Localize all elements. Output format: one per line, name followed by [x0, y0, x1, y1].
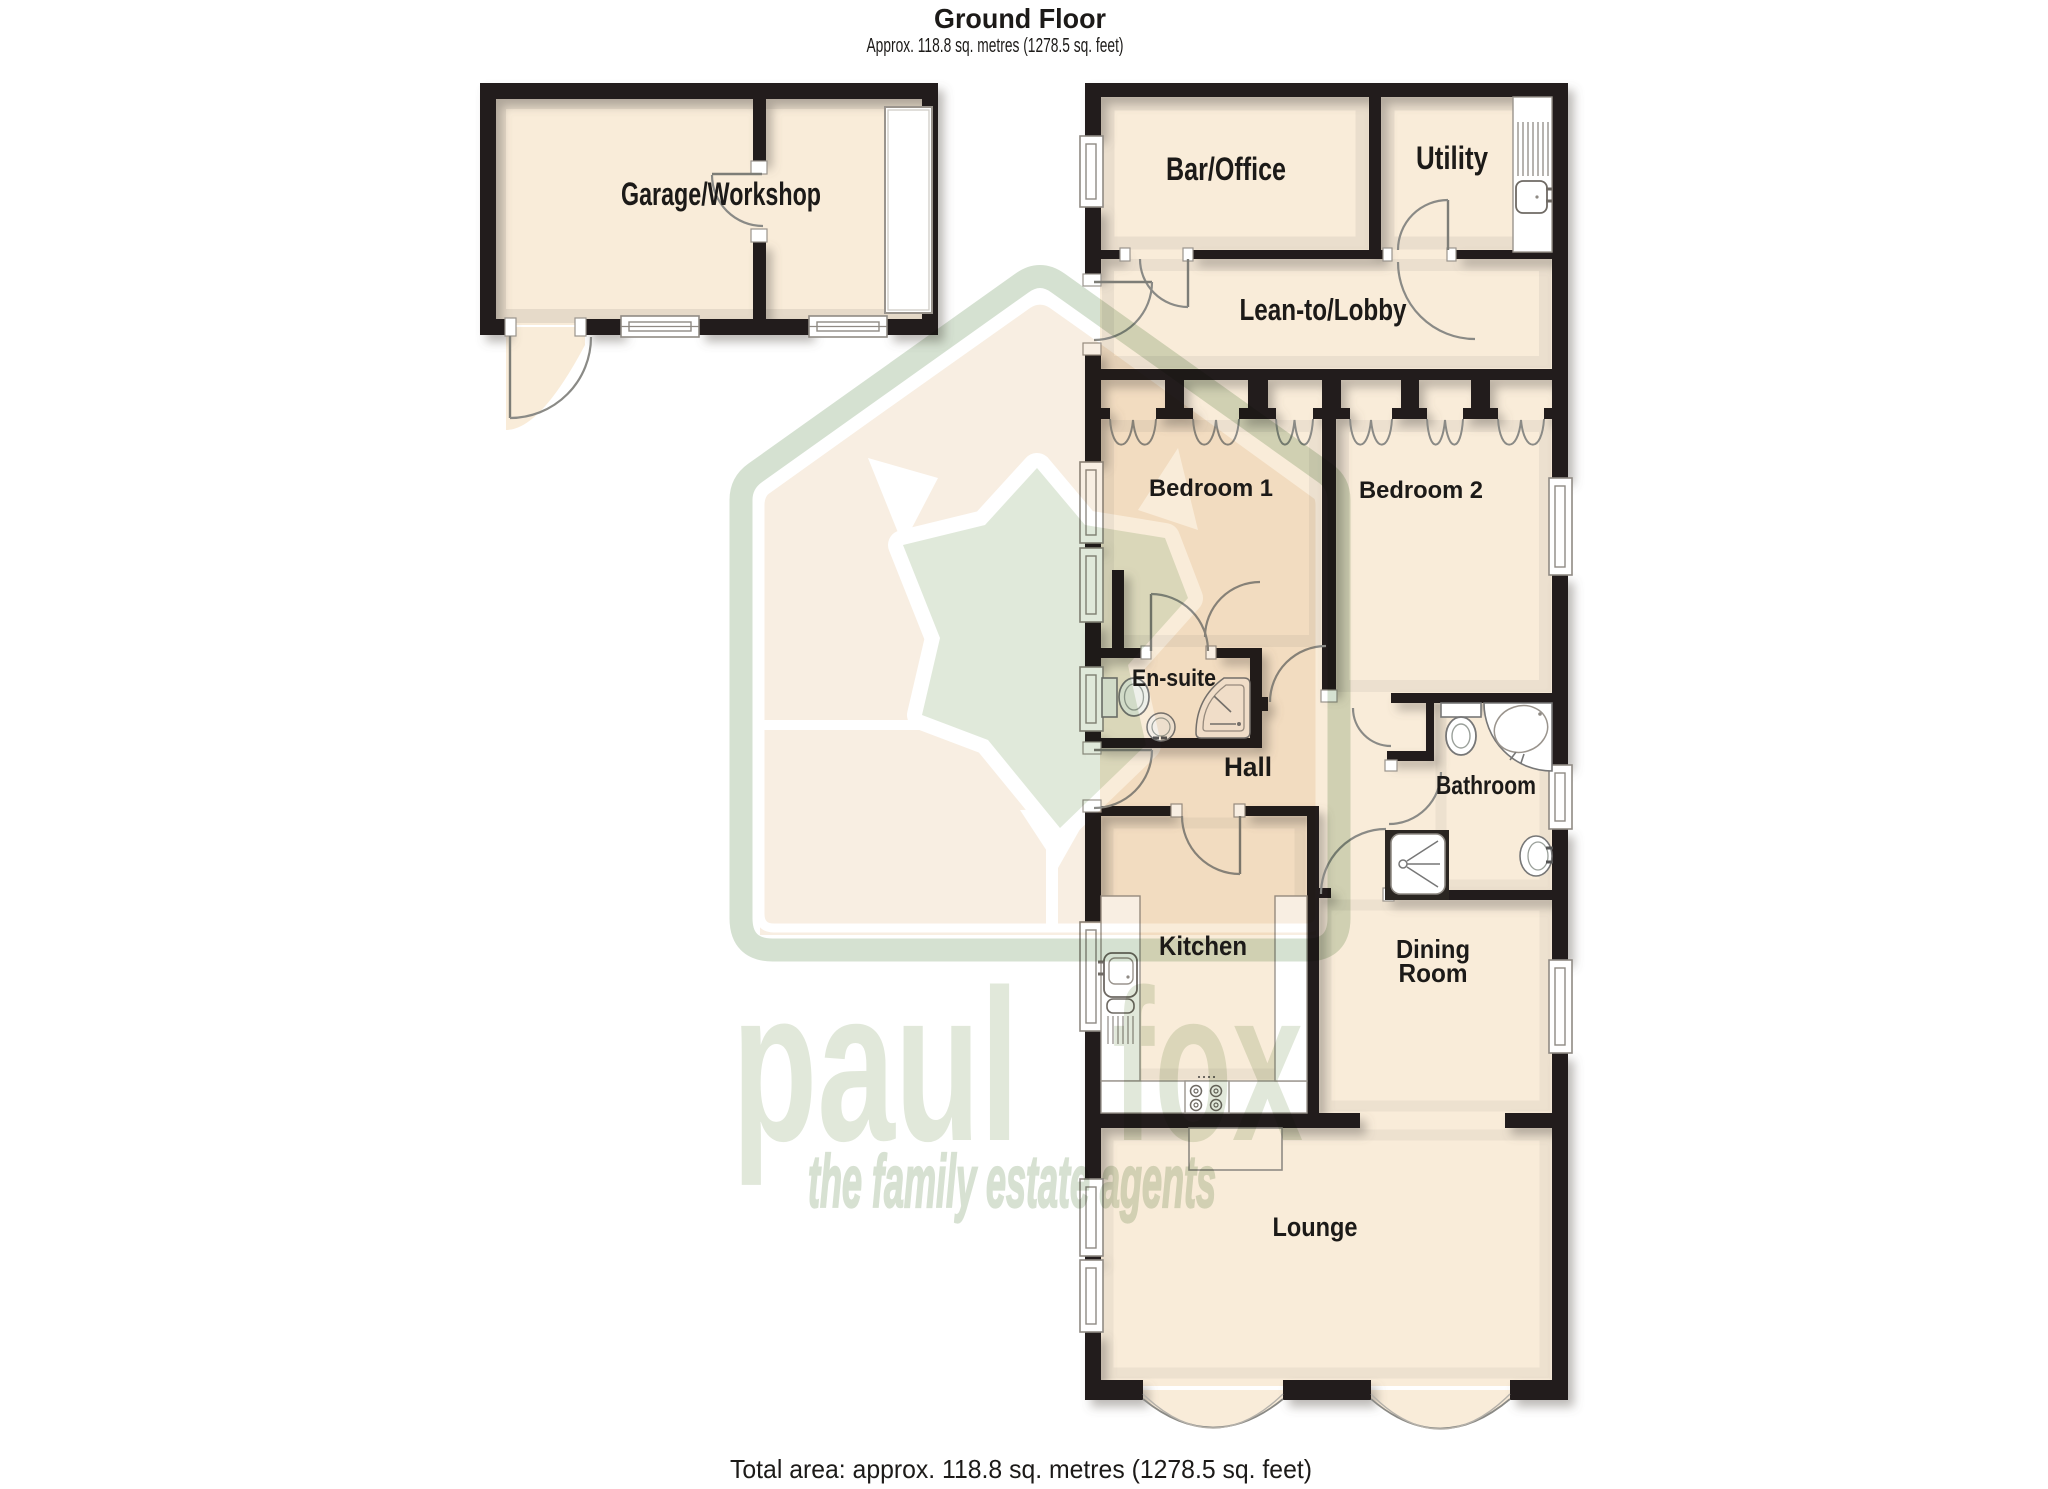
svg-text:Total area: approx. 118.8 sq.: Total area: approx. 118.8 sq. metres (12…	[730, 1454, 1312, 1484]
svg-text:Approx. 118.8 sq. metres (1278: Approx. 118.8 sq. metres (1278.5 sq. fee…	[867, 35, 1124, 57]
svg-text:Utility: Utility	[1416, 140, 1488, 176]
svg-text:Bar/Office: Bar/Office	[1166, 151, 1286, 187]
svg-text:Lounge: Lounge	[1273, 1212, 1358, 1242]
svg-text:Garage/Workshop: Garage/Workshop	[621, 176, 821, 212]
svg-text:En-suite: En-suite	[1132, 665, 1216, 692]
svg-text:Bedroom 1: Bedroom 1	[1149, 475, 1273, 502]
svg-text:the family estate agents: the family estate agents	[808, 1140, 1216, 1223]
svg-text:Bedroom 2: Bedroom 2	[1359, 477, 1483, 504]
svg-text:Kitchen: Kitchen	[1159, 931, 1247, 961]
svg-text:Room: Room	[1399, 958, 1468, 988]
svg-text:Hall: Hall	[1224, 752, 1272, 782]
svg-text:Bathroom: Bathroom	[1436, 770, 1536, 800]
svg-text:Ground Floor: Ground Floor	[934, 3, 1106, 34]
svg-text:Lean-to/Lobby: Lean-to/Lobby	[1240, 292, 1408, 327]
